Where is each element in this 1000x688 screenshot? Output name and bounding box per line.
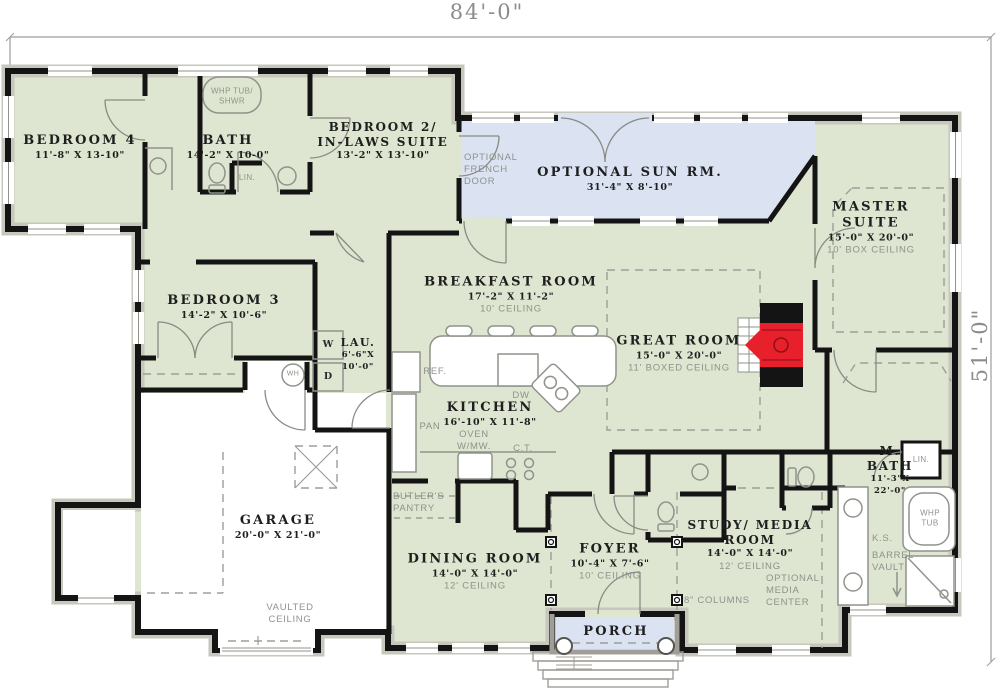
oven bbox=[458, 453, 492, 479]
room-label-bath: BATH 14'-2" X 10-0" bbox=[187, 133, 270, 161]
pantry-cabinet bbox=[392, 394, 416, 472]
dimension-height: 51'-0" bbox=[968, 308, 994, 383]
label-dishwasher: DW bbox=[512, 390, 529, 402]
label-dryer: D bbox=[324, 371, 332, 383]
porch-column bbox=[658, 638, 674, 654]
porch-column bbox=[556, 638, 572, 654]
label-washer: W bbox=[323, 339, 334, 351]
room-label-greatroom: GREAT ROOM 15'-0" X 20'-0" 11' BOXED CEI… bbox=[616, 333, 741, 374]
room-label-sunroom: OPTIONAL SUN RM. 31'-4" X 8'-10" bbox=[537, 165, 723, 193]
room-label-bedroom3: BEDROOM 3 14'-2" X 10'-6" bbox=[167, 293, 280, 321]
room-label-garage: GARAGE 20'-0" X 21'-0" bbox=[235, 513, 321, 541]
room-label-breakfast: BREAKFAST ROOM 17'-2" X 11'-2" 10' CEILI… bbox=[424, 274, 598, 315]
label-linen-master: LIN. bbox=[913, 455, 929, 465]
label-barrel-vault: BARREL VAULT bbox=[872, 550, 914, 574]
label-water-heater: WH bbox=[287, 371, 299, 380]
dishwasher bbox=[498, 354, 538, 386]
master-vanity bbox=[838, 487, 868, 605]
room-label-laundry: LAU. 6'-6"X 10'-0" bbox=[341, 336, 376, 372]
label-columns: 8" COLUMNS bbox=[684, 595, 750, 607]
room-label-bedroom2: BEDROOM 2/ IN-LAWS SUITE 13'-2" X 13'-10… bbox=[317, 120, 448, 162]
label-refrigerator: REF. bbox=[423, 366, 446, 378]
label-linen-bath: LIN. bbox=[239, 173, 255, 183]
label-knee-space: K.S. bbox=[872, 533, 893, 545]
label-whp-tub-master: WHP TUB bbox=[920, 508, 940, 528]
room-label-kitchen: KITCHEN 16'-10" X 11'-8" bbox=[443, 400, 536, 428]
room-label-foyer: FOYER 10'-4" X 7'-6" 10' CEILING bbox=[570, 541, 649, 582]
room-label-study: STUDY/ MEDIA ROOM 14'-0" X 14'-0" 12' CE… bbox=[688, 518, 813, 572]
dimension-width: 84'-0" bbox=[450, 0, 525, 26]
room-label-master: MASTER SUITE 15'-0" X 20'-0" 10' BOX CEI… bbox=[827, 200, 915, 257]
floor-plan-page: 84'-0" 51'-0" BEDROOM 4 11'-8" X 13-10" … bbox=[0, 0, 1000, 688]
label-butlers-pantry: BUTLER'S PANTRY bbox=[393, 491, 444, 515]
refrigerator bbox=[392, 352, 420, 392]
label-cooktop: C.T. bbox=[513, 443, 533, 455]
label-whp-tub-shwr: WHP TUB/ SHWR bbox=[211, 86, 253, 106]
label-optional-media-center: OPTIONAL MEDIA CENTER bbox=[766, 573, 820, 609]
label-oven: OVEN W/MW. bbox=[457, 429, 491, 453]
label-vaulted-ceiling: VAULTED CEILING bbox=[266, 602, 313, 626]
label-pantry: PAN bbox=[420, 421, 441, 433]
garage-door-opening bbox=[220, 645, 313, 655]
room-label-bedroom4: BEDROOM 4 11'-8" X 13-10" bbox=[23, 133, 136, 161]
room-label-mbath: M. BATH 11'-3"X 22'-0" bbox=[867, 444, 913, 496]
label-optional-french-door: OPTIONAL FRENCH DOOR bbox=[464, 152, 518, 188]
room-label-porch: PORCH bbox=[583, 624, 649, 640]
room-label-dining: DINING ROOM 14'-0" X 14'-0" 12' CEILING bbox=[408, 551, 543, 592]
